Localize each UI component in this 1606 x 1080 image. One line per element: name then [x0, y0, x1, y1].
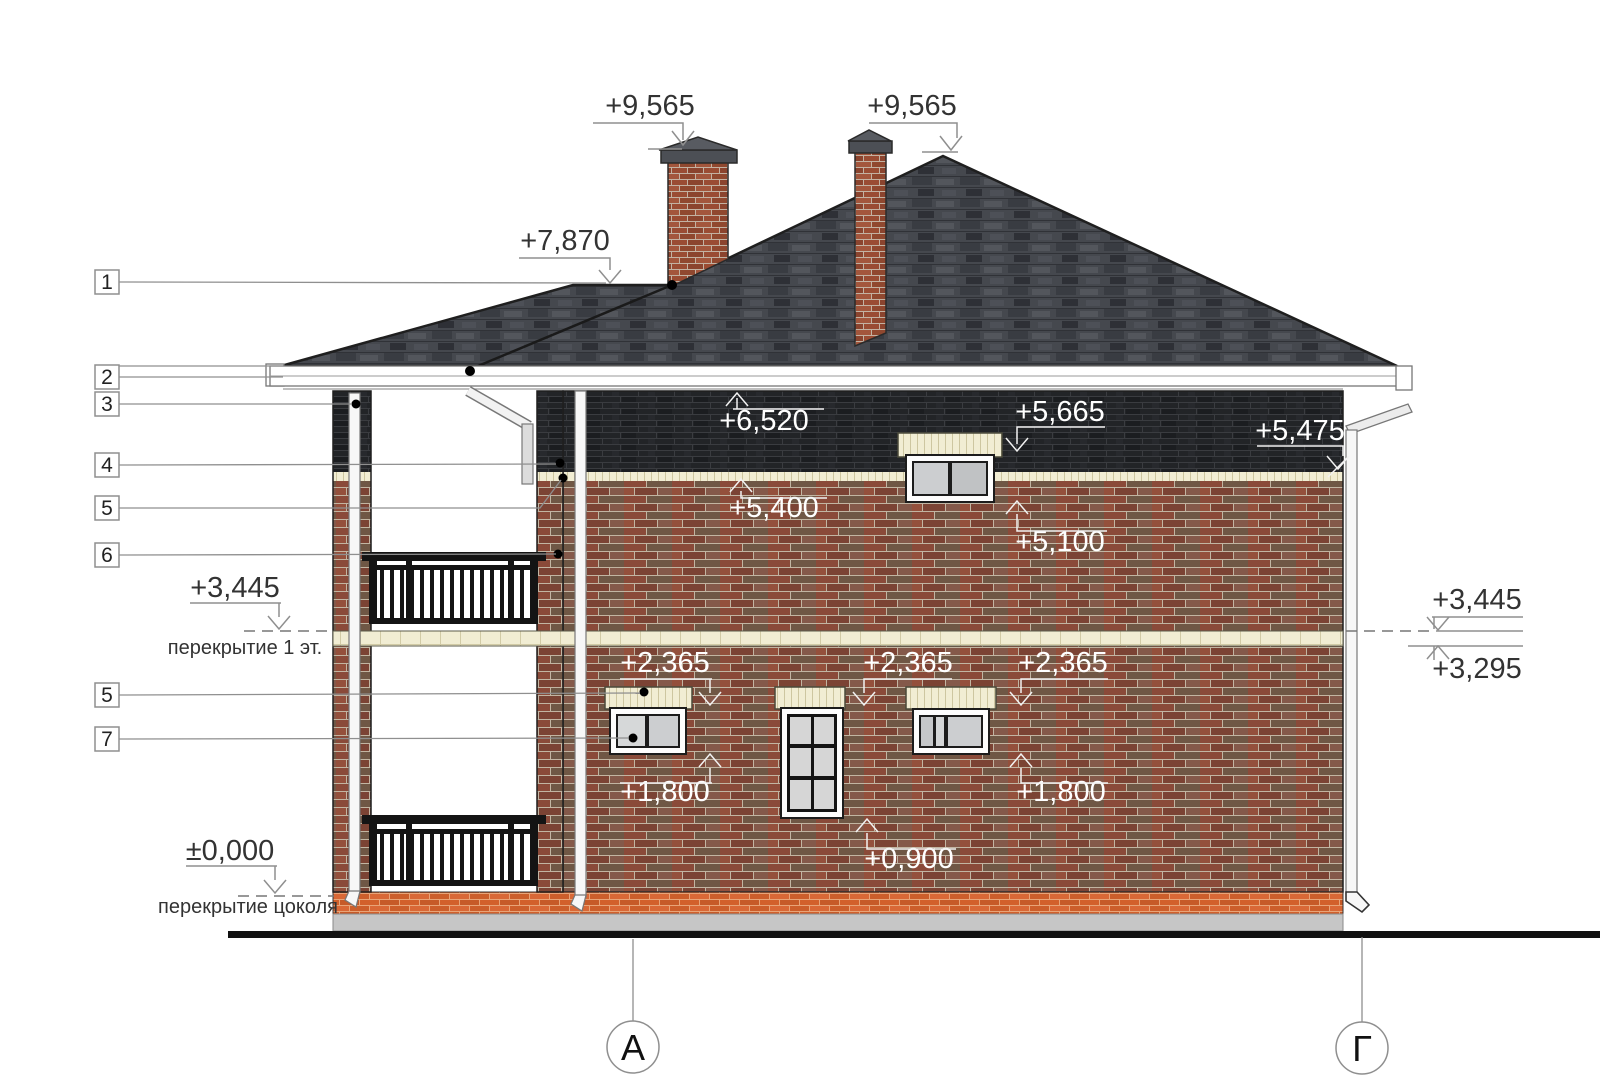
mark-leader: [186, 866, 277, 880]
mark-leader: [1432, 617, 1523, 629]
mark-chimney-left-text: +9,565: [605, 90, 695, 122]
mark-lower-sill-right-text: +1,800: [1016, 776, 1106, 808]
mark-door-sill-text: +0,900: [864, 843, 954, 875]
window-glass: [952, 463, 986, 494]
mark-porch-ridge: +7,870: [519, 225, 621, 283]
callout-leader-1: [119, 282, 606, 283]
railing-post: [406, 561, 412, 624]
balcony-railing-upper: [362, 552, 546, 624]
callout-5: 5: [101, 497, 113, 520]
mark-chimney-left: +9,565: [593, 90, 695, 149]
chimney-body: [855, 152, 886, 346]
railing-balusters: [376, 570, 531, 618]
door-pane: [790, 748, 811, 776]
mark-leader: [519, 258, 610, 270]
mark-lower-head-right-text: +2,365: [1018, 647, 1108, 679]
caption-plinth: перекрытие цоколя: [158, 896, 338, 918]
railing-post: [369, 815, 377, 886]
mark-zero-text: ±0,000: [186, 835, 275, 867]
mark-arrow: [268, 616, 290, 629]
chimney-right: [848, 130, 892, 346]
mark-band-top-text: +5,475: [1255, 415, 1345, 447]
callout-3: 3: [101, 393, 113, 416]
ground-line: [228, 931, 1600, 938]
mark-leader: [190, 603, 281, 617]
railing-post: [406, 824, 412, 886]
downspout-porch-feeder: [468, 391, 533, 484]
mark-floor-right-bottom-text: +3,295: [1432, 653, 1522, 685]
upper-window: [898, 433, 1002, 502]
dot-eave-junction: [465, 366, 475, 376]
mark-arrow: [264, 880, 286, 893]
mark-floor-right-text: +3,445: [1432, 584, 1522, 616]
chimney-cap: [661, 150, 737, 163]
railing-post: [530, 815, 538, 886]
railing-post: [530, 552, 538, 624]
mark-leader: [593, 123, 683, 140]
railing-top-rail: [362, 815, 546, 824]
callout-1: 1: [101, 271, 113, 294]
axis-a-letter: А: [621, 1027, 645, 1068]
mark-floor-right-bottom: +3,295: [1408, 646, 1523, 685]
mark-lower-head-left-text: +2,365: [620, 647, 710, 679]
mark-porch-ridge-text: +7,870: [520, 225, 610, 257]
downspout-pipe: [349, 393, 360, 893]
chimney-cap: [849, 141, 892, 153]
railing-balusters: [376, 834, 531, 880]
railing-post: [369, 552, 377, 624]
porch-railing-lower: [362, 815, 546, 886]
mark-chimney-right-text: +9,565: [867, 90, 957, 122]
downspout-pipe: [575, 391, 586, 897]
callout-4: 4: [101, 454, 113, 477]
wall-brick-upper: [563, 481, 1343, 631]
downspout-elbow: [1346, 892, 1369, 912]
mark-band-bottom-text: +5,400: [729, 492, 819, 524]
downspout-angle: [468, 391, 529, 426]
railing-top-rail: [362, 552, 546, 561]
downspout-stub: [522, 424, 533, 484]
plinth: [333, 892, 1343, 914]
dot-downspout: [352, 400, 361, 409]
axis-g: Г: [1336, 937, 1388, 1074]
lower-left-window: [605, 687, 692, 754]
dot-window-header: [640, 688, 649, 697]
window-header: [898, 433, 1002, 457]
mark-upper-window-head-text: +5,665: [1015, 396, 1105, 428]
french-door: [775, 687, 845, 818]
window-glass: [921, 717, 933, 746]
axis-g-letter: Г: [1352, 1028, 1372, 1069]
mark-lower-head-mid-text: +2,365: [863, 647, 953, 679]
mark-zero: ±0,000 перекрытие цоколя: [158, 835, 338, 918]
mark-floor-left: +3,445 перекрытие 1 эт.: [168, 572, 334, 659]
mark-arrow: [1427, 617, 1449, 630]
mark-floor-left-text: +3,445: [190, 572, 280, 604]
column-brick-lower: [537, 646, 563, 892]
caption-floor1: перекрытие 1 эт.: [168, 637, 322, 659]
railing-post: [508, 824, 514, 886]
elevation-drawing: +9,565 +9,565 +7,870 +6,520 +5,665 +5,47…: [0, 0, 1606, 1080]
mark-floor-right: +3,445: [1346, 584, 1523, 631]
dot-dark-band: [556, 459, 565, 468]
door-pane: [814, 717, 834, 744]
mark-wall-top-text: +6,520: [719, 405, 809, 437]
window-header: [775, 687, 845, 709]
mark-lower-sill-left-text: +1,800: [620, 776, 710, 808]
callout-leader-4: [119, 464, 556, 465]
lower-right-window: [906, 687, 996, 754]
window-header: [906, 687, 996, 709]
callout-5b: 5: [101, 684, 113, 707]
railing-post: [508, 561, 514, 624]
door-pane: [790, 717, 811, 744]
window-glass: [936, 717, 944, 746]
callout-7: 7: [101, 728, 113, 751]
mark-leader: [869, 123, 957, 138]
downspout-right: [1346, 430, 1369, 912]
dot-ridge-junction: [667, 280, 677, 290]
door-pane: [814, 780, 834, 809]
floor-slab-band: [333, 631, 1343, 646]
window-glass: [649, 716, 678, 746]
downspout-pipe: [1346, 430, 1357, 894]
window-glass: [948, 717, 981, 746]
callout-2: 2: [101, 366, 113, 389]
window-header: [605, 687, 692, 709]
door-pane: [814, 748, 834, 776]
axis-a: А: [607, 939, 659, 1073]
dot-window: [629, 734, 638, 743]
chimney-cap-top: [659, 137, 737, 150]
mark-arrow: [599, 270, 621, 283]
gutter-end-right: [1396, 366, 1412, 390]
elevation-svg: +9,565 +9,565 +7,870 +6,520 +5,665 +5,47…: [0, 0, 1606, 1080]
foundation: [333, 914, 1343, 931]
roof-slope: [281, 156, 1397, 366]
chimney-cap-top: [848, 130, 891, 141]
window-glass: [914, 463, 948, 494]
callout-6: 6: [101, 544, 113, 567]
mark-arrow: [940, 136, 962, 150]
door-pane: [790, 780, 811, 809]
